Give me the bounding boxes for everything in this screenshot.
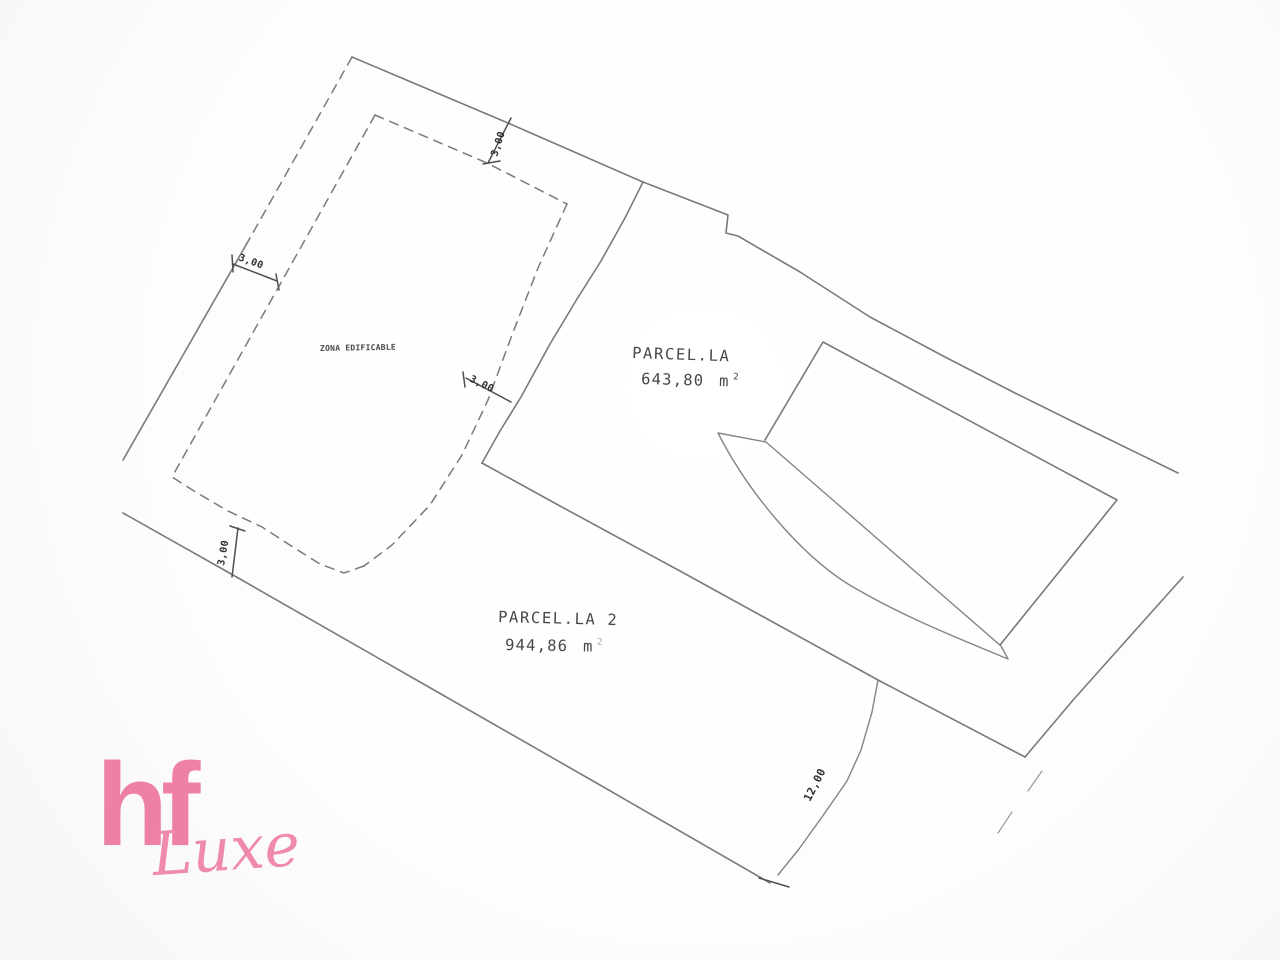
dim-bottom: 3,00 <box>216 526 245 577</box>
parcel-1-area-exponent: 2 <box>733 372 739 382</box>
zona-edificable-west <box>172 115 375 477</box>
parcel-divider <box>482 182 643 463</box>
dim-top-label: 3,00 <box>489 130 507 158</box>
boundary-northwest <box>123 238 250 460</box>
hf-luxe-logo: hf Luxe <box>96 746 326 936</box>
parcel-plan-page: 3,00 3,00 3,00 3,00 12,00 ZONA EDIFICABL… <box>0 0 1280 960</box>
zona-edificable-south <box>172 477 364 573</box>
dim-east-label: 12,00 <box>801 766 829 803</box>
parcel-1-area-value: 643,80 <box>641 370 705 390</box>
boundary-north <box>352 57 1178 473</box>
parcel-2-area: 944,86 m 2 <box>505 636 603 656</box>
parcel-2-area-unit: m <box>583 637 594 655</box>
dim-right-label: 3,00 <box>468 374 496 395</box>
dim-bottom-label: 3,00 <box>216 539 231 566</box>
parcel-1-area: 643,80 m 2 <box>641 370 739 391</box>
parcel-2-area-exponent: 2 <box>597 638 603 648</box>
pool-shape <box>718 433 1008 659</box>
parcel-2-area-value: 944,86 <box>505 636 569 655</box>
parcel-1-name: PARCEL.LA <box>632 344 731 365</box>
dim-left-label: 3,00 <box>237 252 265 271</box>
parcel2-east-edge <box>778 680 878 875</box>
zona-edificable-label: ZONA EDIFICABLE <box>320 343 396 353</box>
boundary-northwest-dashed <box>250 57 352 238</box>
boundary-southeast <box>1025 577 1183 757</box>
inner-rectangle <box>765 342 1117 645</box>
parcel-1-area-unit: m <box>719 372 730 390</box>
parcel-2-name: PARCEL.LA 2 <box>498 608 619 629</box>
zona-edificable-east <box>364 204 567 566</box>
parcel-1-label: PARCEL.LA <box>632 344 731 365</box>
boundary-southeast-faded <box>998 771 1042 833</box>
dim-left: 3,00 <box>232 252 279 290</box>
parcel-2-label: PARCEL.LA 2 <box>498 608 619 629</box>
zona-edificable-north <box>375 115 567 204</box>
logo-luxe-text: Luxe <box>150 815 302 885</box>
dim-top: 3,00 <box>483 118 511 164</box>
dim-east: 12,00 <box>801 766 829 803</box>
parcel2-east-end-tick <box>759 878 789 887</box>
dim-right: 3,00 <box>463 372 511 402</box>
